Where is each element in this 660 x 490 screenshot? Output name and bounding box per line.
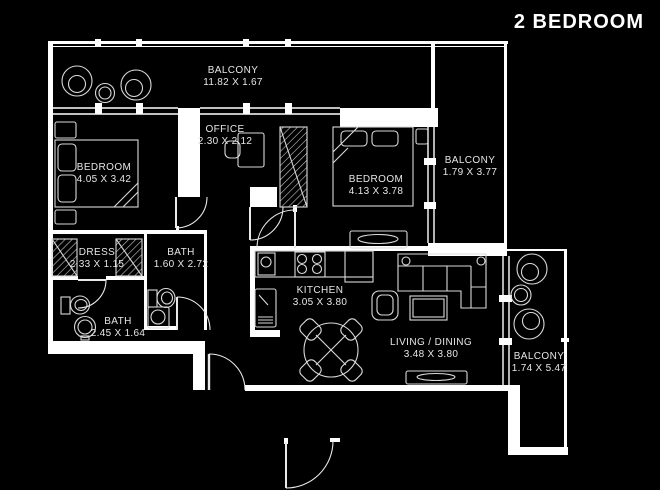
room-name: BALCONY xyxy=(512,351,566,363)
room-label-bedroom-2: BEDROOM 4.13 X 3.78 xyxy=(349,174,403,198)
room-name: DRESS xyxy=(70,247,124,259)
armchair-icon xyxy=(372,291,398,320)
bath-1-sink-icon xyxy=(148,307,169,328)
bedroom-2-door xyxy=(257,210,295,248)
room-label-office: OFFICE 2.30 X 2.12 xyxy=(198,124,252,148)
lower-corridor-door xyxy=(286,441,333,488)
room-name: LIVING / DINING xyxy=(390,337,472,349)
bath-2-toilet-icon xyxy=(61,296,90,314)
room-label-bedroom-1: BEDROOM 4.05 X 3.42 xyxy=(77,162,131,186)
room-name: BATH xyxy=(154,247,208,259)
room-label-balcony-top: BALCONY 11.82 X 1.67 xyxy=(203,65,263,89)
floor-plan-drawing xyxy=(0,0,660,490)
entrance-door xyxy=(209,354,245,390)
room-dimensions: 2.30 X 2.12 xyxy=(198,136,252,148)
room-label-dress: DRESS 2.33 X 1.15 xyxy=(70,247,124,271)
tv-console-icon xyxy=(406,371,467,384)
room-name: BEDROOM xyxy=(349,174,403,186)
bedroom-2-dresser-icon xyxy=(350,231,407,248)
room-label-balcony-right: BALCONY 1.79 X 3.77 xyxy=(443,155,497,179)
bedroom-2-wardrobe-icon xyxy=(280,127,307,207)
fridge-icon xyxy=(255,289,276,327)
sofa-icon xyxy=(398,254,486,308)
room-name: OFFICE xyxy=(198,124,252,136)
room-label-bath-1: BATH 1.60 X 2.72 xyxy=(154,247,208,271)
room-label-living-dining: LIVING / DINING 3.48 X 3.80 xyxy=(390,337,472,361)
room-name: BALCONY xyxy=(443,155,497,167)
stove-icon xyxy=(295,252,325,277)
room-dimensions: 3.05 X 3.80 xyxy=(293,297,347,309)
room-dimensions: 1.74 X 5.47 xyxy=(512,363,566,375)
room-dimensions: 1.79 X 3.77 xyxy=(443,167,497,179)
room-label-kitchen: KITCHEN 3.05 X 3.80 xyxy=(293,285,347,309)
room-dimensions: 4.05 X 3.42 xyxy=(77,174,131,186)
room-name: BEDROOM xyxy=(77,162,131,174)
balcony-top-chairs-icon xyxy=(62,66,151,103)
plan-title: 2 BEDROOM xyxy=(514,10,644,34)
balcony-bottom-chairs-icon xyxy=(511,254,547,339)
dining-table-icon xyxy=(298,317,364,383)
dress-door xyxy=(78,280,106,308)
room-name: KITCHEN xyxy=(293,285,347,297)
bedroom-1-door xyxy=(176,197,207,228)
room-dimensions: 11.82 X 1.67 xyxy=(203,77,263,89)
room-dimensions: 4.13 X 3.78 xyxy=(349,186,403,198)
bath-1-toilet-icon xyxy=(148,289,175,308)
room-name: BATH xyxy=(91,316,145,328)
room-dimensions: 2.33 X 1.15 xyxy=(70,259,124,271)
room-dimensions: 1.60 X 2.72 xyxy=(154,259,208,271)
room-label-balcony-bottom: BALCONY 1.74 X 5.47 xyxy=(512,351,566,375)
floor-plan-page: 2 BEDROOM BALCONY 11.82 X 1.67 OFFICE 2.… xyxy=(0,0,660,490)
room-name: BALCONY xyxy=(203,65,263,77)
room-dimensions: 2.45 X 1.64 xyxy=(91,328,145,340)
room-label-bath-2: BATH 2.45 X 1.64 xyxy=(91,316,145,340)
room-dimensions: 3.48 X 3.80 xyxy=(390,349,472,361)
coffee-table-icon xyxy=(410,296,447,320)
